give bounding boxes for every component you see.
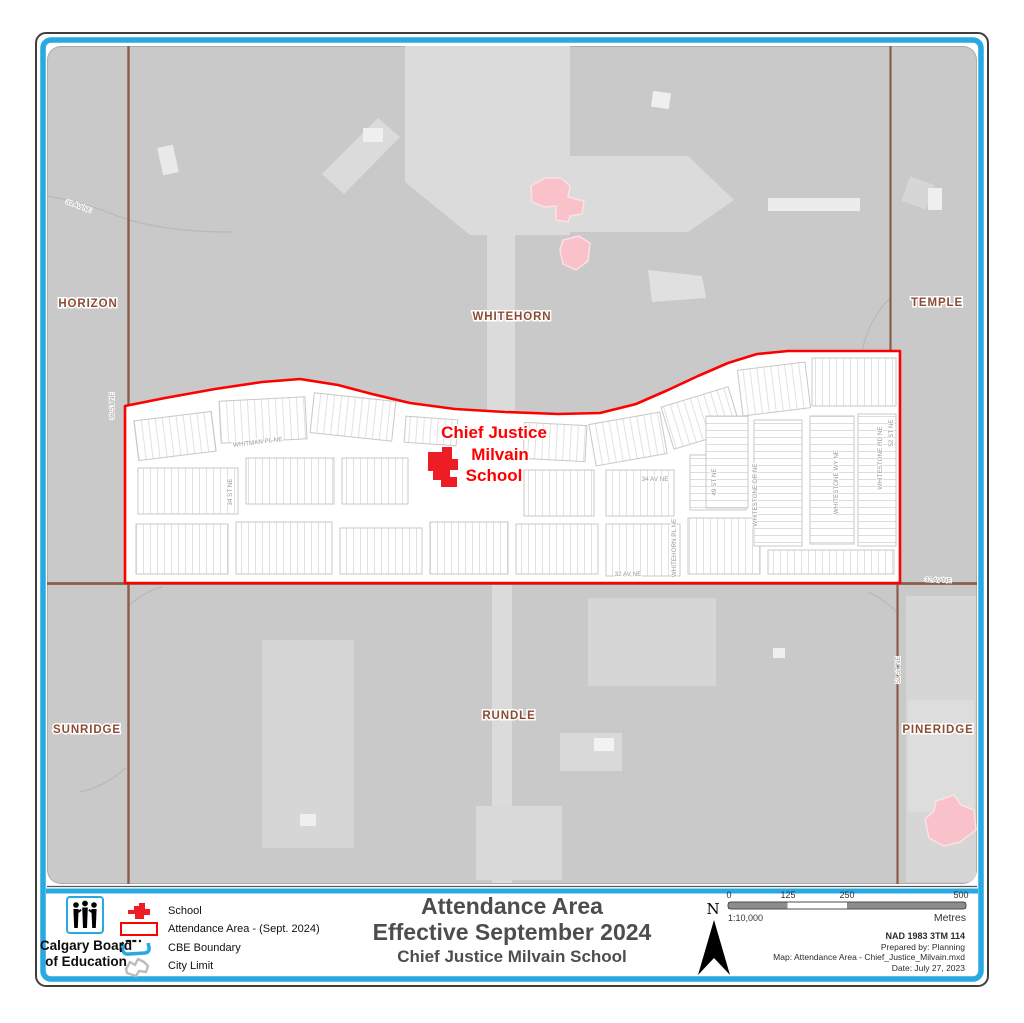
scale-units: Metres bbox=[934, 912, 966, 924]
map-credit-prepared-by: Prepared by: Planning bbox=[610, 942, 965, 953]
street-label: WHITESTONE WY NE bbox=[833, 450, 840, 514]
street-label: 52 ST NE bbox=[888, 419, 895, 446]
cbe-logo-people-icon bbox=[68, 898, 102, 932]
legend-attendance-area-icon bbox=[120, 922, 158, 936]
scale-tick-125: 125 bbox=[780, 890, 795, 900]
cbe-logo bbox=[66, 896, 104, 934]
street-label: WHITESTONE RD NE bbox=[877, 426, 884, 489]
map-page: 39 AV NE 36 ST NE 34 ST NE WHITMAN PL NE… bbox=[0, 0, 1024, 1023]
neighbourhood-label-sunridge: SUNRIDGE bbox=[53, 724, 121, 736]
scale-ratio: 1:10,000 bbox=[728, 913, 763, 923]
street-label: WHITESTONE DR NE bbox=[752, 463, 759, 526]
street-label: 32 AV NE bbox=[615, 571, 642, 578]
map-canvas: 39 AV NE 36 ST NE 34 ST NE WHITMAN PL NE… bbox=[47, 46, 977, 884]
scale-tick-250: 250 bbox=[839, 890, 854, 900]
legend-label-school: School bbox=[168, 905, 202, 917]
street-label: 49 ST NE bbox=[711, 468, 718, 495]
neighbourhood-label-pineridge: PINERIDGE bbox=[902, 724, 973, 736]
scale-bar-segments bbox=[728, 902, 966, 909]
map-credits: NAD 1983 3TM 114 Prepared by: Planning M… bbox=[610, 931, 965, 973]
school-label-line1: Chief Justice bbox=[441, 423, 547, 442]
map-credit-date: Date: July 27, 2023 bbox=[610, 963, 965, 974]
street-label: WHITEHORN PL NE bbox=[671, 519, 678, 578]
map-title-line1: Attendance Area bbox=[312, 893, 712, 919]
legend-city-limit-icon bbox=[122, 957, 152, 978]
scale-bar: 0 125 250 500 1:10,000 Metres bbox=[720, 889, 974, 925]
neighbourhood-label-rundle: RUNDLE bbox=[482, 710, 535, 722]
legend-label-city-limit: City Limit bbox=[168, 960, 213, 972]
map-figure: 39 AV NE 36 ST NE 34 ST NE WHITMAN PL NE… bbox=[0, 0, 1024, 1023]
legend-school-icon bbox=[120, 903, 162, 919]
legend-cbe-boundary-icon bbox=[118, 939, 152, 958]
street-label: 36 ST NE bbox=[109, 392, 116, 419]
map-credit-datum: NAD 1983 3TM 114 bbox=[610, 931, 965, 942]
neighbourhood-label-whitehorn: WHITEHORN bbox=[472, 311, 551, 323]
street-label: 34 AV NE bbox=[642, 476, 669, 483]
neighbourhood-label-temple: TEMPLE bbox=[911, 297, 963, 309]
school-label-line2: Milvain bbox=[471, 445, 529, 464]
scale-tick-500: 500 bbox=[953, 890, 968, 900]
scale-tick-0: 0 bbox=[726, 890, 731, 900]
street-label: 32 AV NE bbox=[925, 577, 952, 585]
map-credit-file: Map: Attendance Area - Chief_Justice_Mil… bbox=[610, 952, 965, 963]
street-label: 34 ST NE bbox=[227, 478, 234, 505]
legend-label-attendance-area: Attendance Area - (Sept. 2024) bbox=[168, 923, 320, 935]
street-label: 52 ST NE bbox=[895, 656, 902, 683]
legend-label-cbe-boundary: CBE Boundary bbox=[168, 942, 241, 954]
school-label-line3: School bbox=[466, 466, 523, 485]
neighbourhood-label-horizon: HORIZON bbox=[58, 298, 117, 310]
